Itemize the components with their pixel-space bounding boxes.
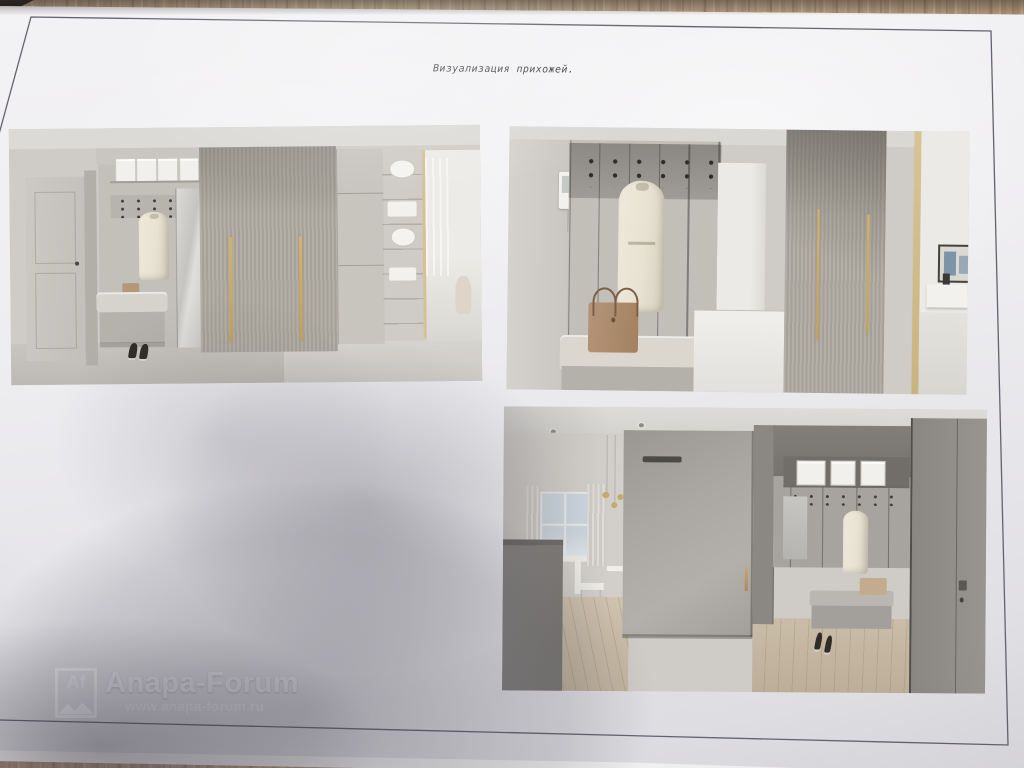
bag-clasp [611,317,615,322]
sliding-wardrobe [783,130,886,394]
cabinet-seam [338,193,383,194]
watermark: Af Anapa-Forum www.anapa-forum.ru [55,668,299,718]
picture-art [959,255,969,274]
picture-art [944,252,956,276]
storage-box [179,157,200,181]
decor-object [943,274,950,285]
storage-box [157,158,178,182]
handbag [587,302,638,353]
dish-plate [389,160,415,179]
page-title: Визуализация прихожей. [433,63,574,75]
corridor-beyond [919,131,970,395]
dish-stack [389,267,416,280]
dish-plate [390,228,416,247]
coat-belt [628,242,656,245]
photo-of-printed-page: Визуализация прихожей. [0,0,1024,768]
entry-door [25,177,88,362]
mirror-panel [175,189,202,348]
hanging-coat [139,212,170,280]
badge-text: Af [67,671,86,693]
smooth-cabinet [336,149,384,344]
bag-handle [592,287,617,317]
cabinet-seam [338,265,383,266]
chair [455,276,472,314]
render-sliding-door [502,406,987,693]
dish-stack [388,201,416,216]
pedestal-column [717,163,767,313]
wardrobe-shading [783,130,886,394]
curtain [425,158,449,276]
photo-shadow-on-image [502,406,987,693]
storage-box [115,158,136,182]
corridor-floor [919,313,968,395]
bench-cushion [97,292,168,313]
door-frame [84,171,98,366]
console-table [926,284,967,308]
anapa-forum-logo-badge: Af [55,668,97,718]
door-knob [75,262,79,266]
sliding-wardrobe [199,146,338,352]
door-panel [34,191,76,263]
coat-collar [149,214,158,219]
door-panel [35,273,77,349]
mountain-icon [58,701,94,715]
room-beyond [425,150,481,341]
pedestal-cabinet [694,310,785,394]
display-cabinet [382,150,424,339]
coat-collar [636,183,649,191]
storage-box [136,158,157,182]
watermark-text-block: Anapa-Forum www.anapa-forum.ru [105,668,299,714]
brand-url: www.anapa-forum.ru [125,699,299,714]
render-coat-niche [506,126,969,395]
bench-base [99,312,165,343]
bag-handle [614,287,639,317]
render-hallway-elevation [9,125,482,386]
paper-sheet: Визуализация прихожей. [0,0,1024,768]
brand-name: Anapa-Forum [105,668,299,698]
